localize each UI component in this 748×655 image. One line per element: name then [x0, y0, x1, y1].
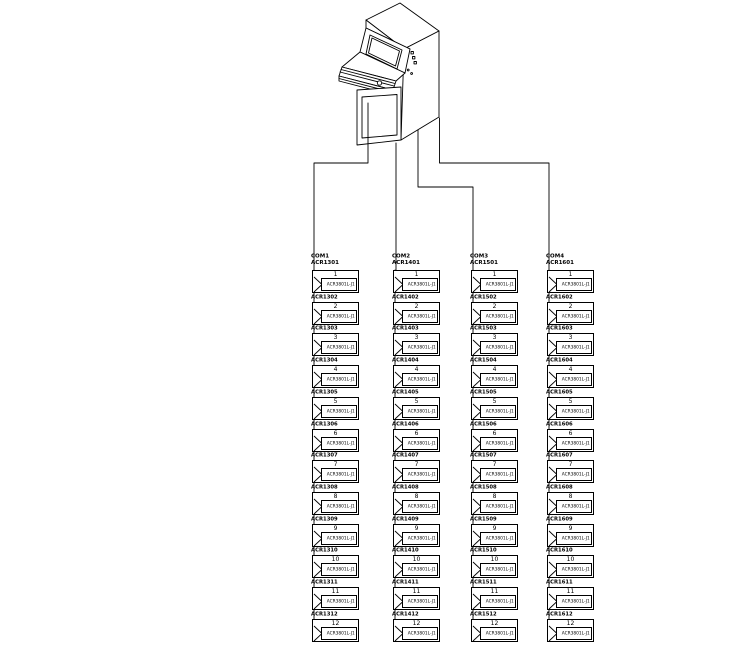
reader-model-box: ACR3801L-J1	[556, 310, 592, 323]
reader-model: ACR3801L-J1	[562, 312, 586, 320]
reader-model: ACR3801L-J1	[562, 471, 586, 479]
reader-unit: ACR1612 12 ACR3801L-J1	[547, 611, 594, 642]
reader-model: ACR3801L-J1	[486, 439, 510, 447]
reader-model: ACR3801L-J1	[327, 502, 351, 510]
reader-box: 3 ACR3801L-J1	[393, 333, 440, 356]
reader-box: 12 ACR3801L-J1	[547, 619, 594, 642]
reader-box: 4 ACR3801L-J1	[312, 365, 359, 388]
reader-unit: ACR1602 2 ACR3801L-J1	[547, 294, 594, 325]
reader-model: ACR3801L-J1	[327, 534, 351, 542]
cable-com3	[418, 130, 473, 270]
reader-box: 9 ACR3801L-J1	[312, 524, 359, 547]
reader-model-box: ACR3801L-J1	[402, 532, 438, 545]
reader-unit: ACR1305 5 ACR3801L-J1	[312, 389, 359, 420]
reader-box: 6 ACR3801L-J1	[312, 429, 359, 452]
reader-box: 4 ACR3801L-J1	[471, 365, 518, 388]
reader-box: 8 ACR3801L-J1	[393, 492, 440, 515]
reader-unit: ACR1302 2 ACR3801L-J1	[312, 294, 359, 325]
reader-model-box: ACR3801L-J1	[556, 373, 592, 386]
reader-box: 5 ACR3801L-J1	[471, 397, 518, 420]
reader-tag: ACR1408	[392, 484, 419, 491]
reader-model: ACR3801L-J1	[562, 502, 586, 510]
reader-tag: ACR1611	[546, 579, 573, 586]
reader-unit: ACR1404 4 ACR3801L-J1	[393, 357, 440, 388]
reader-model-box: ACR3801L-J1	[321, 563, 357, 576]
reader-unit: ACR1407 7 ACR3801L-J1	[393, 452, 440, 483]
reader-box: 10 ACR3801L-J1	[312, 555, 359, 578]
reader-tag: ACR1303	[311, 325, 338, 332]
reader-box: 7 ACR3801L-J1	[471, 460, 518, 483]
reader-box: 6 ACR3801L-J1	[547, 429, 594, 452]
reader-model-box: ACR3801L-J1	[402, 627, 438, 640]
reader-model: ACR3801L-J1	[408, 566, 432, 574]
reader-unit: ACR1310 10 ACR3801L-J1	[312, 547, 359, 578]
reader-tag: ACR1604	[546, 357, 573, 364]
reader-model-box: ACR3801L-J1	[402, 595, 438, 608]
reader-unit: ACR1309 9 ACR3801L-J1	[312, 516, 359, 547]
reader-tag: ACR1312	[311, 611, 338, 618]
reader-unit: ACR1402 2 ACR3801L-J1	[393, 294, 440, 325]
reader-model: ACR3801L-J1	[562, 534, 586, 542]
reader-tag: ACR1410	[392, 547, 419, 554]
reader-box: 5 ACR3801L-J1	[312, 397, 359, 420]
reader-box: 7 ACR3801L-J1	[312, 460, 359, 483]
reader-unit: ACR1408 8 ACR3801L-J1	[393, 484, 440, 515]
reader-model-box: ACR3801L-J1	[321, 341, 357, 354]
reader-tag: ACR1507	[470, 452, 497, 459]
reader-model: ACR3801L-J1	[562, 629, 586, 637]
reader-model: ACR3801L-J1	[562, 566, 586, 574]
reader-unit: ACR1610 10 ACR3801L-J1	[547, 547, 594, 578]
reader-box: 2 ACR3801L-J1	[393, 302, 440, 325]
reader-unit: ACR1611 11 ACR3801L-J1	[547, 579, 594, 610]
reader-box: 8 ACR3801L-J1	[312, 492, 359, 515]
reader-box: 1 ACR3801L-J1	[471, 270, 518, 293]
reader-model: ACR3801L-J1	[562, 281, 586, 289]
reader-unit: ACR1511 11 ACR3801L-J1	[471, 579, 518, 610]
reader-model-box: ACR3801L-J1	[480, 500, 516, 513]
reader-tag: ACR1411	[392, 579, 419, 586]
reader-box: 10 ACR3801L-J1	[393, 555, 440, 578]
reader-model-box: ACR3801L-J1	[321, 627, 357, 640]
reader-unit: 1 ACR3801L-J1	[312, 262, 359, 293]
reader-box: 11 ACR3801L-J1	[312, 587, 359, 610]
reader-unit: ACR1411 11 ACR3801L-J1	[393, 579, 440, 610]
reader-model: ACR3801L-J1	[486, 312, 510, 320]
reader-box: 4 ACR3801L-J1	[547, 365, 594, 388]
reader-box: 3 ACR3801L-J1	[471, 333, 518, 356]
reader-tag: ACR1503	[470, 325, 497, 332]
reader-model: ACR3801L-J1	[408, 629, 432, 637]
reader-box: 11 ACR3801L-J1	[393, 587, 440, 610]
reader-box: 5 ACR3801L-J1	[393, 397, 440, 420]
reader-unit: ACR1505 5 ACR3801L-J1	[471, 389, 518, 420]
reader-model: ACR3801L-J1	[408, 281, 432, 289]
reader-tag: ACR1506	[470, 421, 497, 428]
reader-model: ACR3801L-J1	[486, 566, 510, 574]
reader-unit: 1 ACR3801L-J1	[393, 262, 440, 293]
reader-tag: ACR1309	[311, 516, 338, 523]
reader-tag: ACR1508	[470, 484, 497, 491]
reader-model-box: ACR3801L-J1	[321, 532, 357, 545]
reader-unit: ACR1502 2 ACR3801L-J1	[471, 294, 518, 325]
reader-tag: ACR1603	[546, 325, 573, 332]
reader-box: 11 ACR3801L-J1	[547, 587, 594, 610]
reader-model: ACR3801L-J1	[408, 471, 432, 479]
reader-unit: ACR1604 4 ACR3801L-J1	[547, 357, 594, 388]
reader-model: ACR3801L-J1	[327, 344, 351, 352]
console-trackball	[377, 81, 381, 85]
reader-model-box: ACR3801L-J1	[556, 627, 592, 640]
reader-model: ACR3801L-J1	[486, 629, 510, 637]
reader-tag: ACR1306	[311, 421, 338, 428]
reader-model: ACR3801L-J1	[408, 439, 432, 447]
reader-model: ACR3801L-J1	[562, 344, 586, 352]
reader-model-box: ACR3801L-J1	[321, 373, 357, 386]
reader-box: 12 ACR3801L-J1	[393, 619, 440, 642]
reader-box: 7 ACR3801L-J1	[393, 460, 440, 483]
reader-model-box: ACR3801L-J1	[480, 437, 516, 450]
reader-unit: ACR1308 8 ACR3801L-J1	[312, 484, 359, 515]
reader-model: ACR3801L-J1	[486, 376, 510, 384]
reader-tag: ACR1607	[546, 452, 573, 459]
reader-unit: ACR1307 7 ACR3801L-J1	[312, 452, 359, 483]
reader-model-box: ACR3801L-J1	[402, 278, 438, 291]
reader-tag: ACR1406	[392, 421, 419, 428]
reader-tag: ACR1403	[392, 325, 419, 332]
reader-model-box: ACR3801L-J1	[402, 373, 438, 386]
reader-unit: 1 ACR3801L-J1	[471, 262, 518, 293]
reader-model-box: ACR3801L-J1	[321, 278, 357, 291]
reader-box: 6 ACR3801L-J1	[471, 429, 518, 452]
reader-tag: ACR1308	[311, 484, 338, 491]
reader-box: 2 ACR3801L-J1	[547, 302, 594, 325]
reader-tag: ACR1502	[470, 294, 497, 301]
reader-model: ACR3801L-J1	[327, 376, 351, 384]
reader-box: 4 ACR3801L-J1	[393, 365, 440, 388]
reader-model-box: ACR3801L-J1	[556, 278, 592, 291]
reader-model: ACR3801L-J1	[562, 598, 586, 606]
reader-unit: ACR1312 12 ACR3801L-J1	[312, 611, 359, 642]
reader-tag: ACR1310	[311, 547, 338, 554]
reader-tag: ACR1511	[470, 579, 497, 586]
reader-model-box: ACR3801L-J1	[556, 532, 592, 545]
reader-unit: ACR1410 10 ACR3801L-J1	[393, 547, 440, 578]
reader-unit: ACR1603 3 ACR3801L-J1	[547, 325, 594, 356]
reader-model: ACR3801L-J1	[327, 439, 351, 447]
reader-box: 3 ACR3801L-J1	[312, 333, 359, 356]
reader-box: 10 ACR3801L-J1	[547, 555, 594, 578]
reader-box: 5 ACR3801L-J1	[547, 397, 594, 420]
reader-model: ACR3801L-J1	[327, 598, 351, 606]
reader-tag: ACR1412	[392, 611, 419, 618]
reader-unit: ACR1405 5 ACR3801L-J1	[393, 389, 440, 420]
reader-unit: ACR1608 8 ACR3801L-J1	[547, 484, 594, 515]
reader-unit: 1 ACR3801L-J1	[547, 262, 594, 293]
reader-box: 8 ACR3801L-J1	[547, 492, 594, 515]
reader-box: 2 ACR3801L-J1	[471, 302, 518, 325]
reader-model: ACR3801L-J1	[562, 376, 586, 384]
reader-box: 3 ACR3801L-J1	[547, 333, 594, 356]
reader-tag: ACR1409	[392, 516, 419, 523]
reader-tag: ACR1504	[470, 357, 497, 364]
reader-unit: ACR1507 7 ACR3801L-J1	[471, 452, 518, 483]
reader-unit: ACR1503 3 ACR3801L-J1	[471, 325, 518, 356]
reader-unit: ACR1403 3 ACR3801L-J1	[393, 325, 440, 356]
reader-unit: ACR1509 9 ACR3801L-J1	[471, 516, 518, 547]
reader-model-box: ACR3801L-J1	[556, 468, 592, 481]
reader-box: 2 ACR3801L-J1	[312, 302, 359, 325]
reader-model-box: ACR3801L-J1	[402, 405, 438, 418]
reader-tag: ACR1610	[546, 547, 573, 554]
reader-model-box: ACR3801L-J1	[480, 405, 516, 418]
reader-tag: ACR1608	[546, 484, 573, 491]
reader-unit: ACR1504 4 ACR3801L-J1	[471, 357, 518, 388]
reader-unit: ACR1510 10 ACR3801L-J1	[471, 547, 518, 578]
reader-model: ACR3801L-J1	[327, 281, 351, 289]
diagram-linework	[0, 0, 748, 655]
reader-tag: ACR1512	[470, 611, 497, 618]
reader-model-box: ACR3801L-J1	[480, 532, 516, 545]
reader-model-box: ACR3801L-J1	[556, 500, 592, 513]
reader-model-box: ACR3801L-J1	[321, 310, 357, 323]
reader-model-box: ACR3801L-J1	[480, 627, 516, 640]
reader-model-box: ACR3801L-J1	[556, 405, 592, 418]
reader-tag: ACR1509	[470, 516, 497, 523]
reader-box: 1 ACR3801L-J1	[547, 270, 594, 293]
reader-model: ACR3801L-J1	[327, 471, 351, 479]
reader-box: 1 ACR3801L-J1	[312, 270, 359, 293]
reader-model: ACR3801L-J1	[486, 471, 510, 479]
reader-box: 6 ACR3801L-J1	[393, 429, 440, 452]
reader-unit: ACR1406 6 ACR3801L-J1	[393, 421, 440, 452]
reader-model: ACR3801L-J1	[486, 344, 510, 352]
reader-model-box: ACR3801L-J1	[480, 468, 516, 481]
reader-model-box: ACR3801L-J1	[556, 341, 592, 354]
reader-model: ACR3801L-J1	[327, 407, 351, 415]
reader-model: ACR3801L-J1	[562, 407, 586, 415]
reader-box: 9 ACR3801L-J1	[471, 524, 518, 547]
reader-box: 9 ACR3801L-J1	[547, 524, 594, 547]
reader-model-box: ACR3801L-J1	[480, 278, 516, 291]
reader-tag: ACR1609	[546, 516, 573, 523]
reader-box: 12 ACR3801L-J1	[312, 619, 359, 642]
reader-model-box: ACR3801L-J1	[321, 595, 357, 608]
reader-tag: ACR1505	[470, 389, 497, 396]
reader-tag: ACR1302	[311, 294, 338, 301]
reader-unit: ACR1605 5 ACR3801L-J1	[547, 389, 594, 420]
reader-model: ACR3801L-J1	[486, 407, 510, 415]
reader-unit: ACR1303 3 ACR3801L-J1	[312, 325, 359, 356]
reader-unit: ACR1512 12 ACR3801L-J1	[471, 611, 518, 642]
reader-tag: ACR1612	[546, 611, 573, 618]
cable-com4	[440, 118, 550, 270]
reader-unit: ACR1412 12 ACR3801L-J1	[393, 611, 440, 642]
reader-unit: ACR1306 6 ACR3801L-J1	[312, 421, 359, 452]
reader-tag: ACR1407	[392, 452, 419, 459]
reader-tag: ACR1402	[392, 294, 419, 301]
reader-tag: ACR1405	[392, 389, 419, 396]
reader-model: ACR3801L-J1	[486, 534, 510, 542]
reader-model-box: ACR3801L-J1	[402, 310, 438, 323]
reader-unit: ACR1606 6 ACR3801L-J1	[547, 421, 594, 452]
reader-tag: ACR1606	[546, 421, 573, 428]
reader-unit: ACR1506 6 ACR3801L-J1	[471, 421, 518, 452]
reader-model: ACR3801L-J1	[408, 534, 432, 542]
reader-box: 10 ACR3801L-J1	[471, 555, 518, 578]
reader-box: 11 ACR3801L-J1	[471, 587, 518, 610]
reader-model: ACR3801L-J1	[408, 344, 432, 352]
reader-model-box: ACR3801L-J1	[402, 500, 438, 513]
reader-model-box: ACR3801L-J1	[321, 437, 357, 450]
reader-box: 12 ACR3801L-J1	[471, 619, 518, 642]
reader-model: ACR3801L-J1	[408, 502, 432, 510]
reader-model: ACR3801L-J1	[327, 312, 351, 320]
reader-tag: ACR1305	[311, 389, 338, 396]
reader-tag: ACR1605	[546, 389, 573, 396]
reader-model-box: ACR3801L-J1	[480, 341, 516, 354]
reader-box: 8 ACR3801L-J1	[471, 492, 518, 515]
reader-box: 9 ACR3801L-J1	[393, 524, 440, 547]
reader-model: ACR3801L-J1	[562, 439, 586, 447]
reader-tag: ACR1510	[470, 547, 497, 554]
reader-model-box: ACR3801L-J1	[556, 563, 592, 576]
reader-model-box: ACR3801L-J1	[480, 563, 516, 576]
reader-model-box: ACR3801L-J1	[480, 595, 516, 608]
reader-model-box: ACR3801L-J1	[321, 500, 357, 513]
reader-tag: ACR1404	[392, 357, 419, 364]
reader-model-box: ACR3801L-J1	[321, 405, 357, 418]
reader-model: ACR3801L-J1	[327, 629, 351, 637]
reader-model: ACR3801L-J1	[408, 376, 432, 384]
diagram-canvas: COM1 ACR1301 COM2 ACR1401 COM3 ACR1501 C…	[0, 0, 748, 655]
operator-console	[339, 3, 439, 145]
reader-unit: ACR1304 4 ACR3801L-J1	[312, 357, 359, 388]
reader-model-box: ACR3801L-J1	[556, 437, 592, 450]
reader-model-box: ACR3801L-J1	[402, 563, 438, 576]
reader-box: 7 ACR3801L-J1	[547, 460, 594, 483]
reader-tag: ACR1311	[311, 579, 338, 586]
reader-model-box: ACR3801L-J1	[402, 341, 438, 354]
reader-unit: ACR1607 7 ACR3801L-J1	[547, 452, 594, 483]
reader-unit: ACR1609 9 ACR3801L-J1	[547, 516, 594, 547]
reader-box: 1 ACR3801L-J1	[393, 270, 440, 293]
reader-model: ACR3801L-J1	[486, 502, 510, 510]
reader-unit: ACR1409 9 ACR3801L-J1	[393, 516, 440, 547]
reader-model: ACR3801L-J1	[408, 407, 432, 415]
reader-tag: ACR1307	[311, 452, 338, 459]
reader-model-box: ACR3801L-J1	[321, 468, 357, 481]
reader-tag: ACR1304	[311, 357, 338, 364]
reader-tag: ACR1602	[546, 294, 573, 301]
reader-model: ACR3801L-J1	[408, 312, 432, 320]
reader-model-box: ACR3801L-J1	[480, 310, 516, 323]
reader-model-box: ACR3801L-J1	[480, 373, 516, 386]
reader-model-box: ACR3801L-J1	[402, 468, 438, 481]
reader-model: ACR3801L-J1	[486, 281, 510, 289]
reader-model: ACR3801L-J1	[486, 598, 510, 606]
reader-model-box: ACR3801L-J1	[556, 595, 592, 608]
reader-model-box: ACR3801L-J1	[402, 437, 438, 450]
reader-model: ACR3801L-J1	[408, 598, 432, 606]
reader-model: ACR3801L-J1	[327, 566, 351, 574]
reader-unit: ACR1311 11 ACR3801L-J1	[312, 579, 359, 610]
reader-unit: ACR1508 8 ACR3801L-J1	[471, 484, 518, 515]
